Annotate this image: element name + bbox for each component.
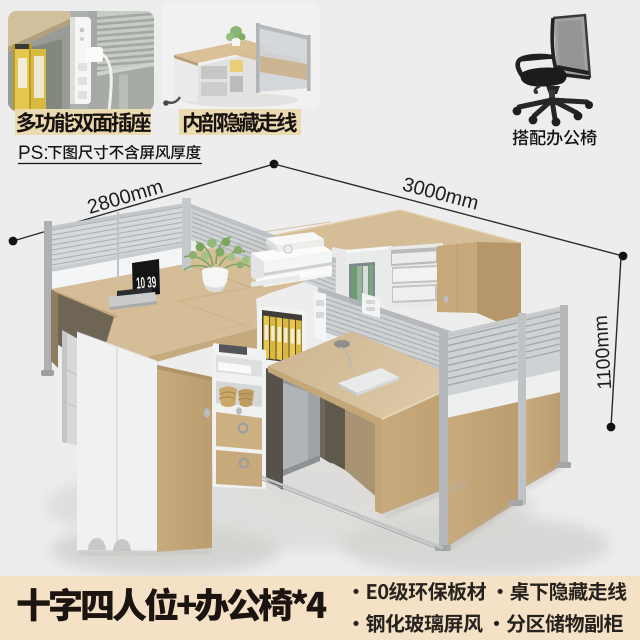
svg-text:PS:: PS: xyxy=(18,143,49,164)
svg-text:1100mm: 1100mm xyxy=(590,315,616,391)
